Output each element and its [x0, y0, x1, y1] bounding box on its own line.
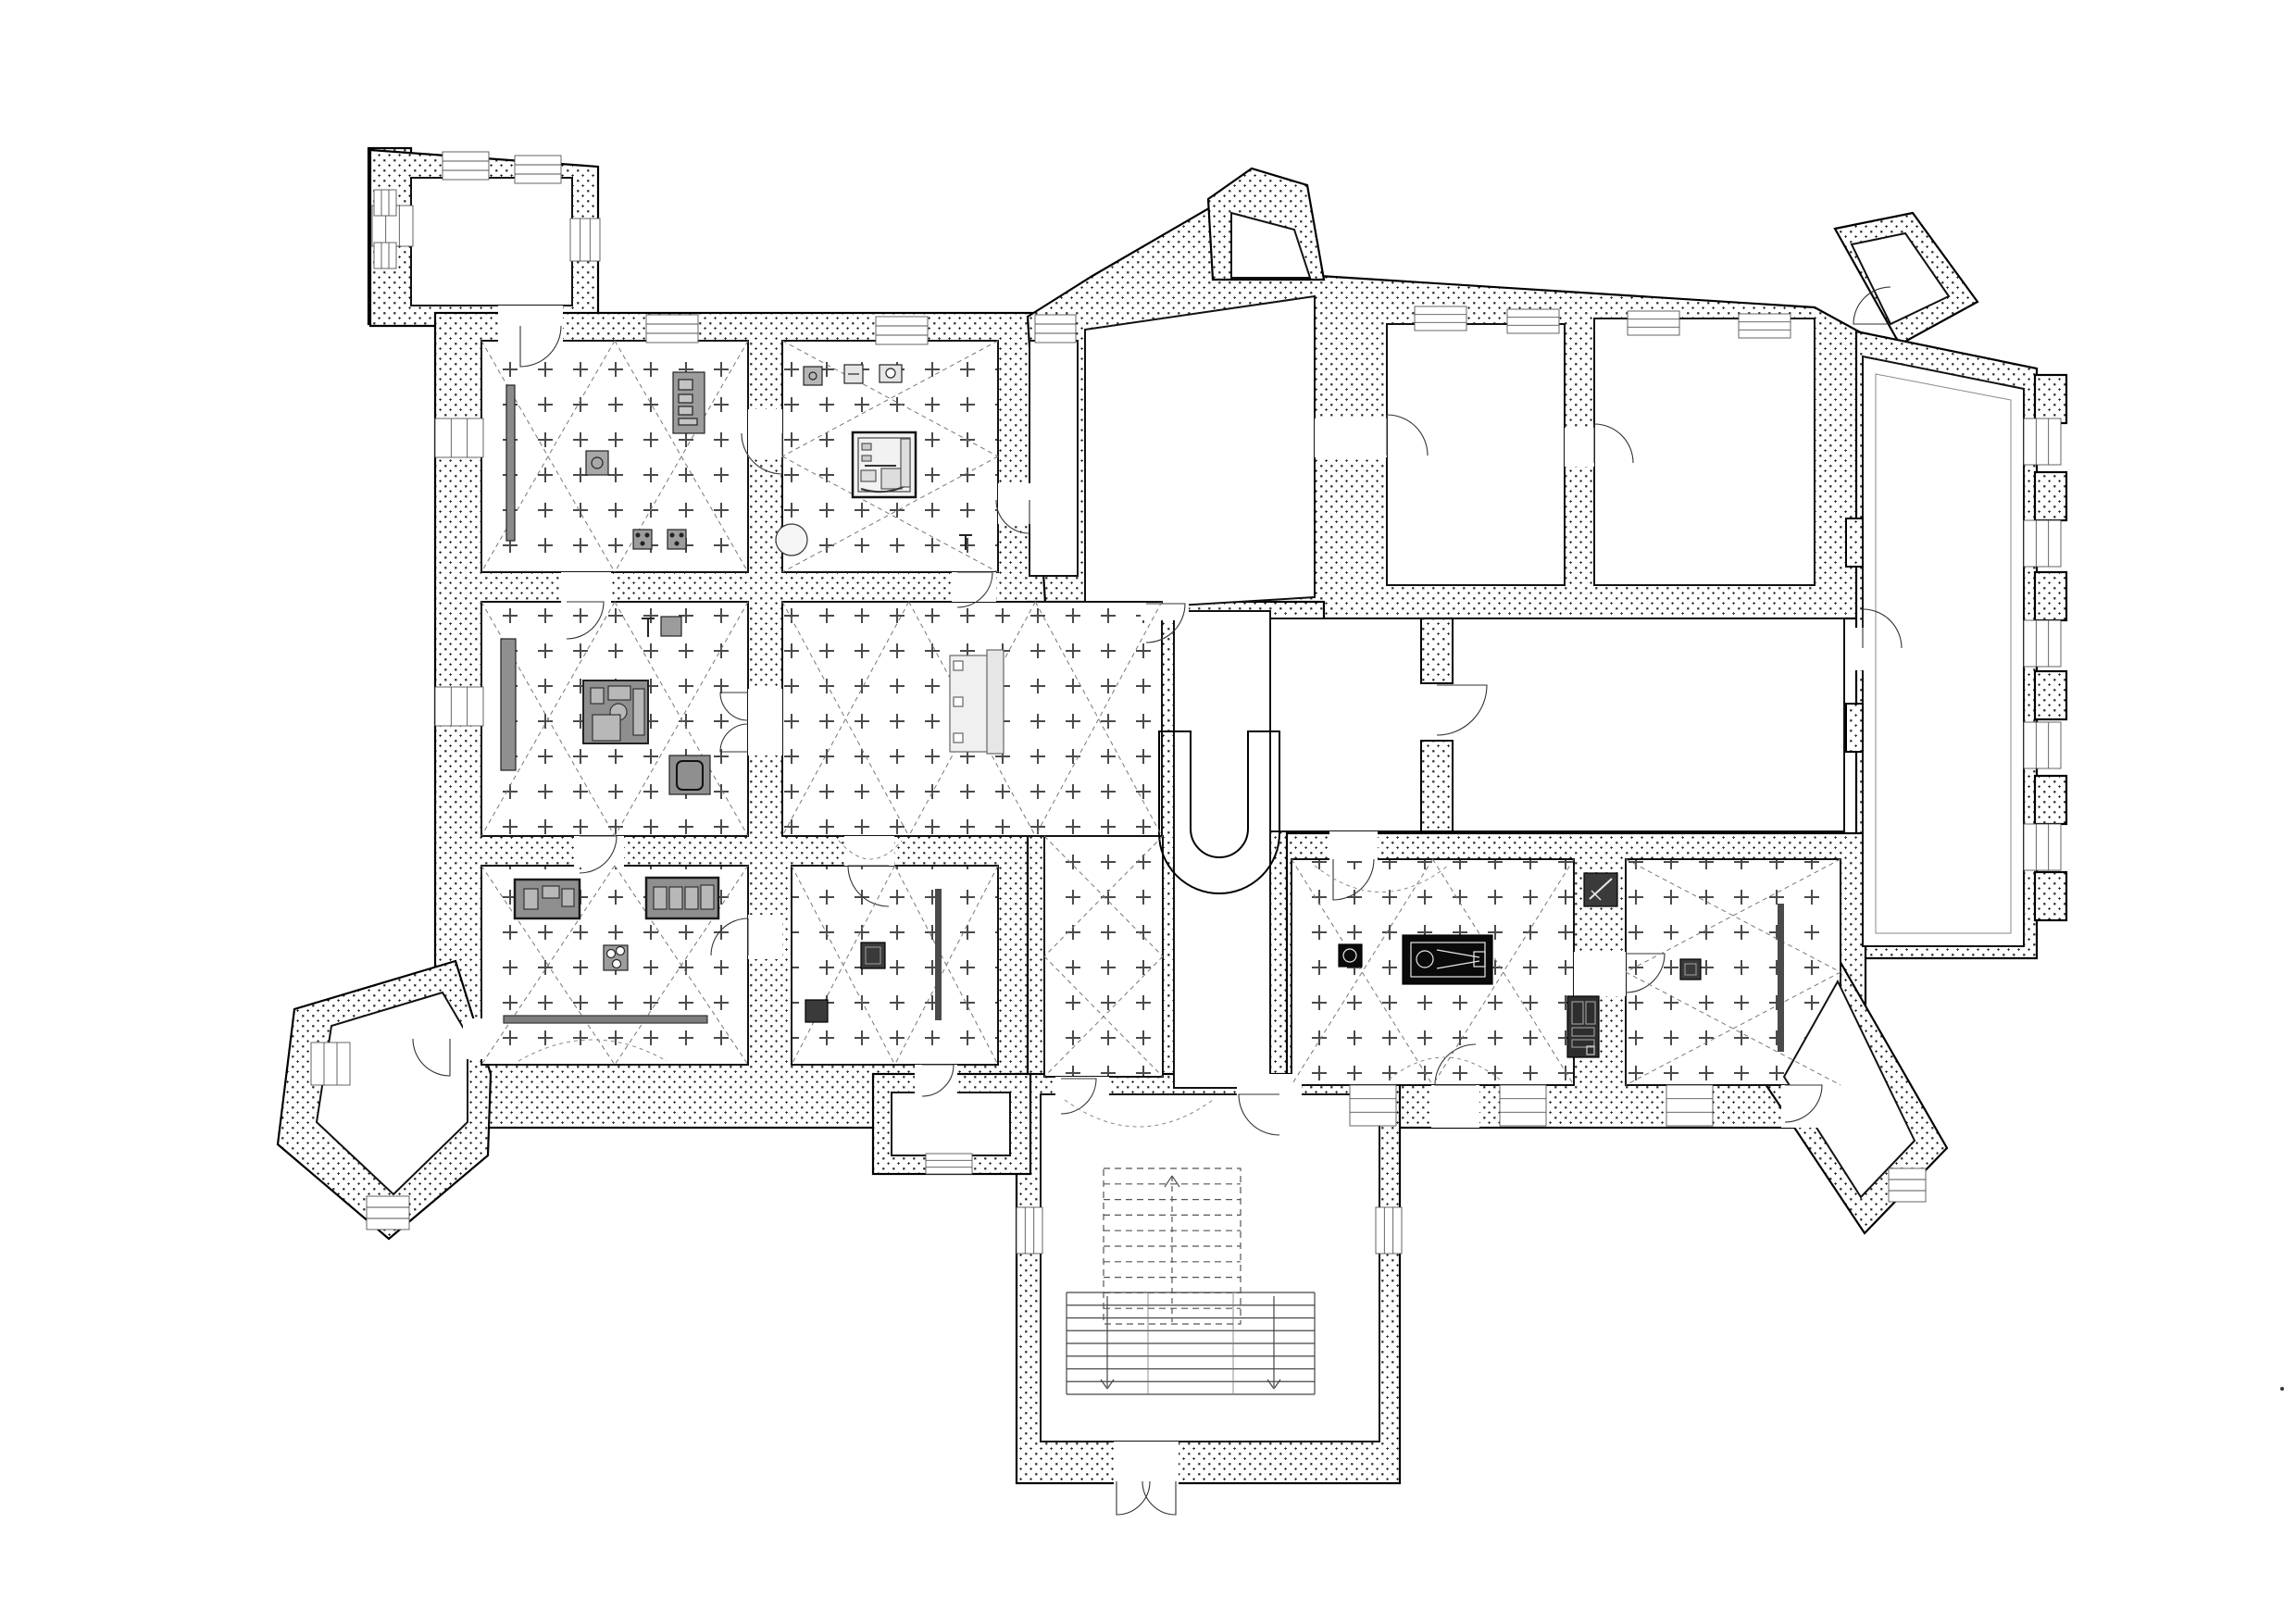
- window: [1507, 309, 1559, 333]
- chair: [591, 688, 604, 704]
- case-item: [701, 885, 714, 909]
- altar-notch: [954, 661, 963, 670]
- floor-plan-drawing: [0, 0, 2296, 1623]
- room-east-gallery: [1863, 356, 2024, 946]
- buttress-2: [2035, 472, 2066, 520]
- window: [1500, 1085, 1546, 1126]
- room-s-vaulted-6: [792, 866, 998, 1065]
- room-stair-hall: [1041, 1094, 1379, 1442]
- window: [2024, 620, 2061, 667]
- door-gap: [1853, 628, 1866, 670]
- stray-mark: [2280, 1387, 2284, 1391]
- door-gap: [1329, 831, 1378, 861]
- door-gap: [1315, 418, 1387, 457]
- door-gap: [1431, 1085, 1479, 1128]
- case-item: [881, 468, 902, 489]
- room-north-2: [1387, 324, 1565, 585]
- window: [2024, 520, 2061, 567]
- buttress-4: [2035, 671, 2066, 719]
- pedestal-dark: [861, 943, 885, 968]
- door-gap: [1781, 1085, 1826, 1128]
- stand: [586, 451, 608, 475]
- window: [1628, 311, 1679, 335]
- wall-fixture-detail: [886, 368, 895, 378]
- stove-dot: [645, 533, 650, 538]
- door-gap: [463, 1018, 483, 1059]
- room-north-center: [1085, 296, 1315, 611]
- pedestal-black: [1339, 944, 1362, 967]
- long-bench: [504, 1016, 707, 1023]
- room-annex: [411, 178, 572, 306]
- rail-bar: [935, 889, 942, 1020]
- window: [1017, 1207, 1042, 1254]
- stove: [668, 530, 686, 549]
- stove-dot: [675, 542, 680, 546]
- window: [570, 218, 600, 261]
- case-item: [901, 439, 910, 487]
- window: [443, 152, 489, 180]
- window: [926, 1154, 972, 1174]
- cabinet-detail: [679, 418, 697, 425]
- corridor-north-vertical: [1029, 341, 1078, 576]
- altar-notch: [954, 697, 963, 706]
- bench-bar: [501, 639, 516, 770]
- corridor-center-vertical: [1174, 611, 1270, 1088]
- window: [1889, 1168, 1926, 1202]
- door-gap: [1574, 952, 1626, 996]
- stove: [633, 530, 652, 549]
- bench-bar: [506, 385, 515, 541]
- window: [876, 317, 928, 344]
- altar-slab: [987, 650, 1004, 754]
- door-gap: [561, 572, 611, 604]
- buttress-3: [2035, 572, 2066, 620]
- door-gap: [1141, 604, 1189, 620]
- buttress-5: [2035, 776, 2066, 824]
- door-gap: [498, 306, 563, 343]
- chair-row: [633, 689, 644, 735]
- stove-dot: [636, 533, 641, 538]
- case-item: [654, 887, 667, 909]
- door-gap: [844, 836, 894, 866]
- window: [374, 190, 396, 216]
- stove-dot: [680, 533, 684, 538]
- stove-dot: [670, 533, 675, 538]
- window: [435, 418, 483, 457]
- room-north-3: [1594, 318, 1815, 585]
- gallery-pier-2: [1846, 704, 1863, 752]
- window: [1035, 315, 1076, 343]
- door-gap: [748, 915, 782, 959]
- cabinet-detail: [679, 406, 693, 415]
- floor-plan-page: [0, 0, 2296, 1623]
- door-gap: [1237, 1074, 1302, 1096]
- window: [367, 1196, 409, 1230]
- window: [374, 243, 396, 268]
- pedestal-dark: [805, 1000, 828, 1022]
- window: [1350, 1085, 1396, 1126]
- door-gap: [1565, 428, 1594, 467]
- corridor-pier-1: [1421, 618, 1453, 683]
- gallery-pier-1: [1846, 518, 1863, 567]
- door-gap: [748, 689, 782, 755]
- font-detail: [613, 960, 621, 968]
- window: [2024, 418, 2061, 465]
- window: [1666, 1085, 1713, 1126]
- sofa: [608, 686, 630, 700]
- room-south-annex: [892, 1092, 1010, 1155]
- pedestal-dark: [1680, 959, 1701, 980]
- hall-center-vaulted: [1044, 836, 1163, 1077]
- buttress-1: [2035, 375, 2066, 423]
- rail-bar: [1778, 904, 1784, 1052]
- case-item: [685, 887, 698, 909]
- wall-fixture: [804, 367, 822, 385]
- window: [1739, 314, 1791, 338]
- round-table: [776, 524, 807, 556]
- table-square: [593, 715, 620, 741]
- buttress-6: [2035, 872, 2066, 920]
- window: [2024, 722, 2061, 768]
- case-item: [862, 443, 871, 450]
- stove-dot: [641, 542, 645, 546]
- window: [646, 315, 698, 343]
- case-item: [543, 886, 559, 898]
- door-gap: [998, 483, 1031, 524]
- cabinet-detail: [679, 380, 693, 390]
- cabinet-detail: [679, 394, 693, 403]
- font-detail: [617, 947, 625, 955]
- case-item: [862, 456, 871, 461]
- window: [311, 1042, 350, 1085]
- font-detail: [607, 950, 616, 958]
- case-item: [562, 889, 574, 906]
- window: [515, 156, 561, 183]
- door-gap: [1055, 1077, 1109, 1096]
- case-item: [524, 889, 538, 909]
- stand: [661, 617, 681, 636]
- window: [1376, 1207, 1402, 1254]
- entrance-gap: [1114, 1442, 1179, 1485]
- door-gap: [915, 1065, 957, 1094]
- window: [1415, 306, 1466, 331]
- altar-notch: [954, 733, 963, 743]
- corridor-pier-2: [1421, 741, 1453, 831]
- room-nw-vaulted-1: [481, 341, 748, 572]
- door-gap: [748, 409, 782, 457]
- window: [435, 687, 483, 726]
- window: [2024, 824, 2061, 870]
- case-item: [669, 887, 682, 909]
- case-item: [861, 470, 876, 481]
- corridor-main: [1196, 618, 1844, 831]
